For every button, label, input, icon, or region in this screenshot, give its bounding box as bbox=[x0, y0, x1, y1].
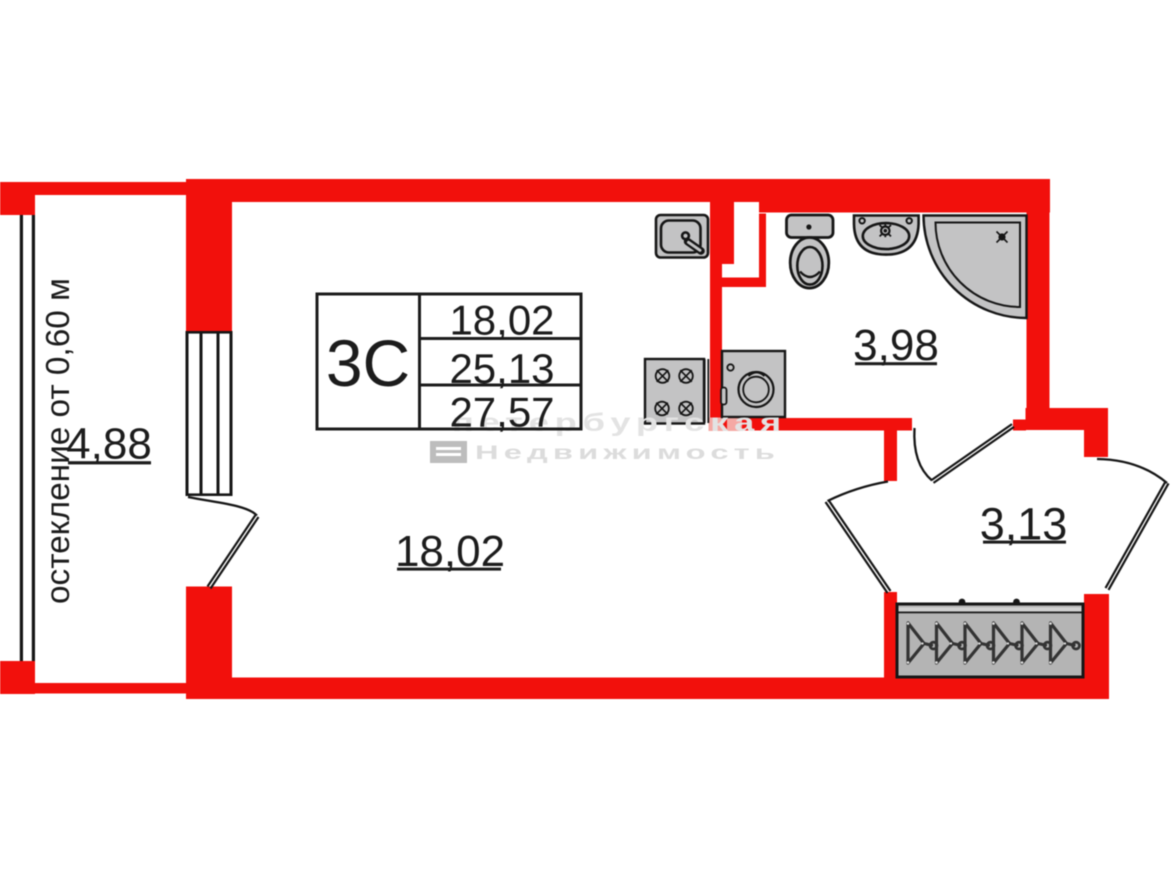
svg-text:27,57: 27,57 bbox=[449, 389, 554, 436]
svg-text:остекление от 0,60 м: остекление от 0,60 м bbox=[39, 278, 76, 604]
svg-text:25,13: 25,13 bbox=[449, 345, 554, 392]
svg-text:Недвижимость: Недвижимость bbox=[475, 443, 780, 464]
svg-text:4,88: 4,88 bbox=[66, 420, 152, 469]
svg-text:18,02: 18,02 bbox=[449, 297, 554, 344]
svg-text:3С: 3С bbox=[326, 326, 410, 400]
